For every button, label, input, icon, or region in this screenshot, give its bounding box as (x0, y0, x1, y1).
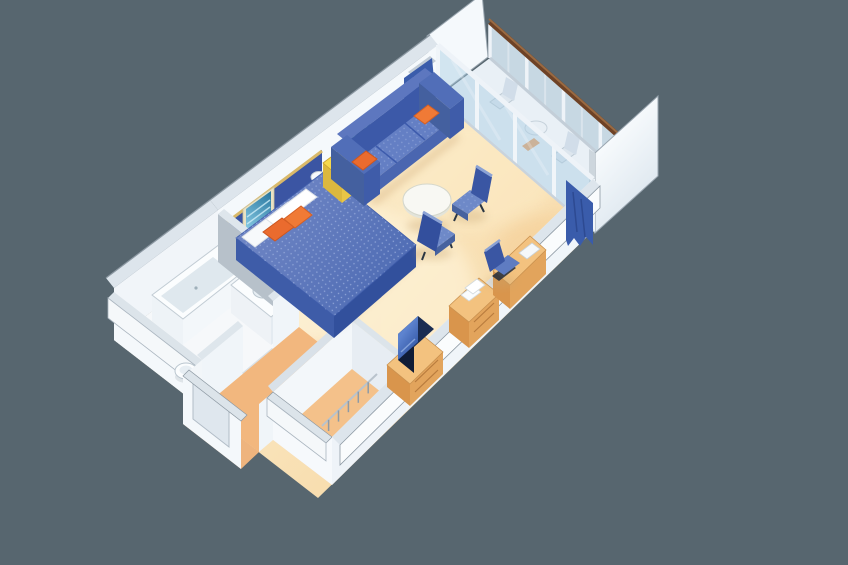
tub-drain (194, 286, 197, 289)
floorplan-svg (0, 0, 848, 565)
table-top (403, 184, 451, 216)
stateroom-floorplan-illustration (0, 0, 848, 565)
